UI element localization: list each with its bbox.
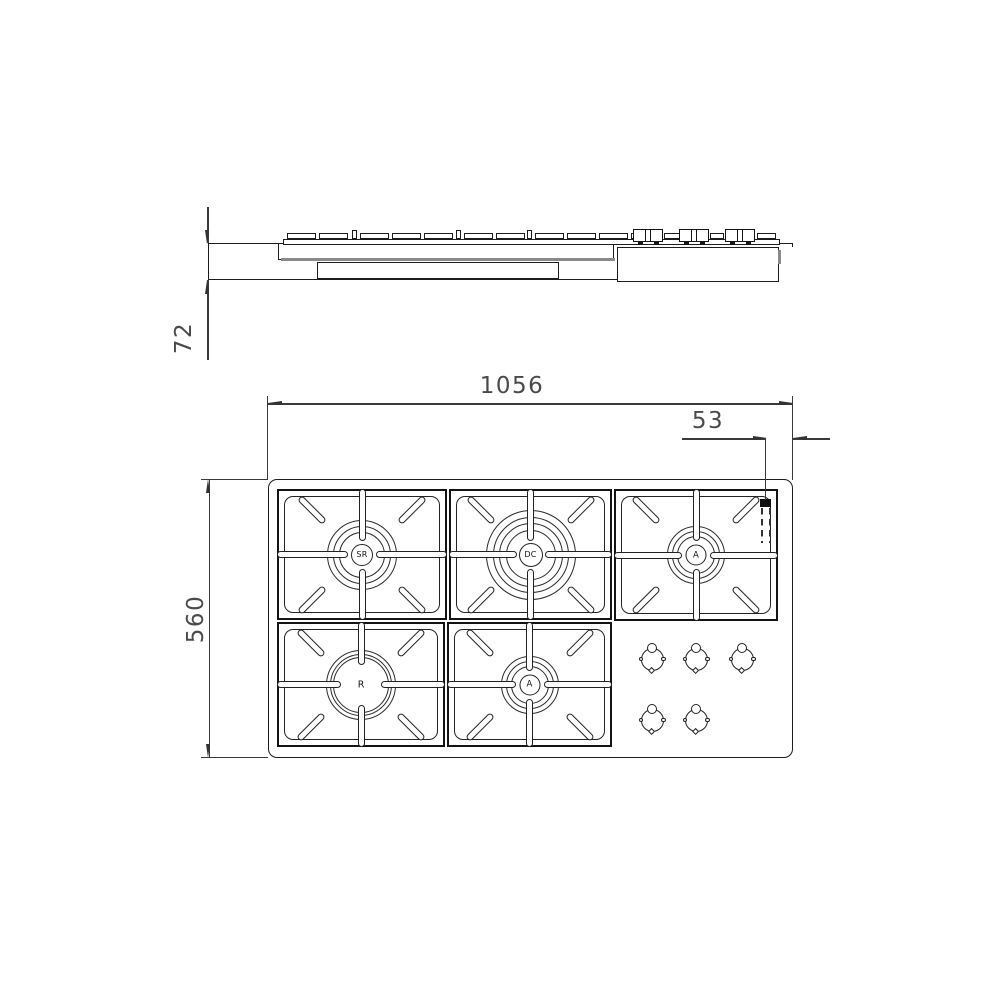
side-grate-tab [392, 233, 421, 239]
control-knob [641, 648, 664, 671]
burner-label: A [526, 680, 532, 690]
igniter-dashed-line [761, 508, 762, 543]
grate-bar [277, 551, 348, 558]
grate-bar [359, 569, 366, 621]
dim-72-arrow-down [205, 230, 209, 244]
grate-bar [358, 705, 365, 748]
side-grate-tab [464, 233, 493, 239]
side-grate-tab [757, 233, 776, 239]
control-knob [641, 709, 664, 732]
dim-ext-left [267, 396, 268, 480]
igniter-dashed-line [769, 508, 770, 543]
burner-box-a-top: A [614, 489, 778, 621]
side-grate-post [456, 230, 461, 239]
dim-53-arrow-left [793, 436, 807, 440]
knob-dot [705, 718, 710, 723]
dim-1056-arrow-left [268, 401, 282, 405]
burner-cap-sr: SR [351, 544, 373, 566]
grate-bar [381, 681, 445, 688]
side-grate-tab [287, 233, 316, 239]
dim-1056-arrow-right [779, 401, 793, 405]
burner-label-r: R [358, 679, 365, 690]
knob-pointer [737, 643, 747, 653]
control-knob [731, 648, 754, 671]
burner-box-sr: SR [277, 489, 447, 620]
side-knob-profile [679, 229, 709, 242]
knob-dot [661, 657, 666, 662]
side-grate-post [352, 230, 357, 239]
igniter-position-marker [760, 499, 771, 507]
knob-dot [661, 718, 666, 723]
burner-box-dc: DC [449, 489, 612, 620]
grate-bar [526, 622, 533, 671]
knob-dot [705, 657, 710, 662]
side-grate-tab [424, 233, 453, 239]
side-housing-upper-shadow [281, 258, 615, 261]
knob-dot [729, 657, 734, 662]
burner-label: A [693, 550, 699, 560]
control-knob [685, 648, 708, 671]
side-knob-profile [725, 229, 755, 242]
side-grate-tab [599, 233, 628, 239]
grate-bar [544, 681, 613, 688]
grate-bar [710, 552, 778, 559]
knob-pointer [691, 704, 701, 714]
knob-dot [639, 718, 644, 723]
grate-bar [358, 622, 365, 665]
grate-bar [545, 551, 613, 558]
grate-bar [526, 699, 533, 748]
dim-53-ext-line [765, 439, 766, 500]
grate-bar [449, 551, 517, 558]
side-right-tick [792, 243, 793, 248]
grate-bar [447, 681, 516, 688]
dim-560-arrow-down [206, 744, 210, 758]
side-grate-post [527, 230, 532, 239]
knob-dot [683, 718, 688, 723]
burner-box-a-bottom: A [447, 622, 612, 747]
side-housing-lower [317, 262, 559, 279]
side-grate-tab [496, 233, 525, 239]
knob-pointer [647, 704, 657, 714]
side-housing-right [617, 247, 779, 283]
grate-bar [614, 552, 682, 559]
side-grate-tab [360, 233, 389, 239]
grate-bar [277, 681, 341, 688]
dim-560-line [209, 479, 210, 758]
knob-pointer [647, 643, 657, 653]
knob-pointer [691, 643, 701, 653]
grate-bar [527, 489, 534, 541]
knob-dot [751, 657, 756, 662]
burner-cap-a-bottom: A [519, 674, 540, 695]
side-grate-tab [319, 233, 348, 239]
burner-cap-a-top: A [686, 545, 707, 566]
dim-72-arrow-up [205, 280, 209, 294]
grate-bar [693, 569, 700, 621]
burner-label: SR [356, 550, 367, 559]
side-grate-tab [535, 233, 564, 239]
burner-cap-dc: DC [519, 543, 543, 567]
dim-53-label: 53 [692, 408, 724, 434]
control-knob [685, 709, 708, 732]
knob-dot [639, 657, 644, 662]
dim-1056-line [268, 403, 793, 404]
grate-bar [693, 489, 700, 541]
technical-drawing-canvas: 72 SR [0, 0, 1000, 1000]
grate-bar [359, 489, 366, 541]
side-knob-profile [633, 229, 663, 242]
dim-1056-label: 1056 [480, 373, 545, 399]
dim-72-label: 72 [171, 322, 197, 354]
side-housing-right-shadow [778, 250, 781, 264]
grate-bar [376, 551, 447, 558]
grate-bar [527, 569, 534, 621]
burner-box-r: R [277, 622, 445, 747]
side-left-edge [208, 243, 209, 280]
burner-label: DC [524, 550, 536, 559]
dim-560-ext-bottom [201, 757, 268, 758]
dim-560-arrow-up [206, 479, 210, 493]
knob-dot [683, 657, 688, 662]
dim-560-ext-top [201, 479, 268, 480]
side-grate-tab [710, 233, 724, 239]
dim-560-label: 560 [183, 595, 209, 643]
side-grate-tab [567, 233, 596, 239]
